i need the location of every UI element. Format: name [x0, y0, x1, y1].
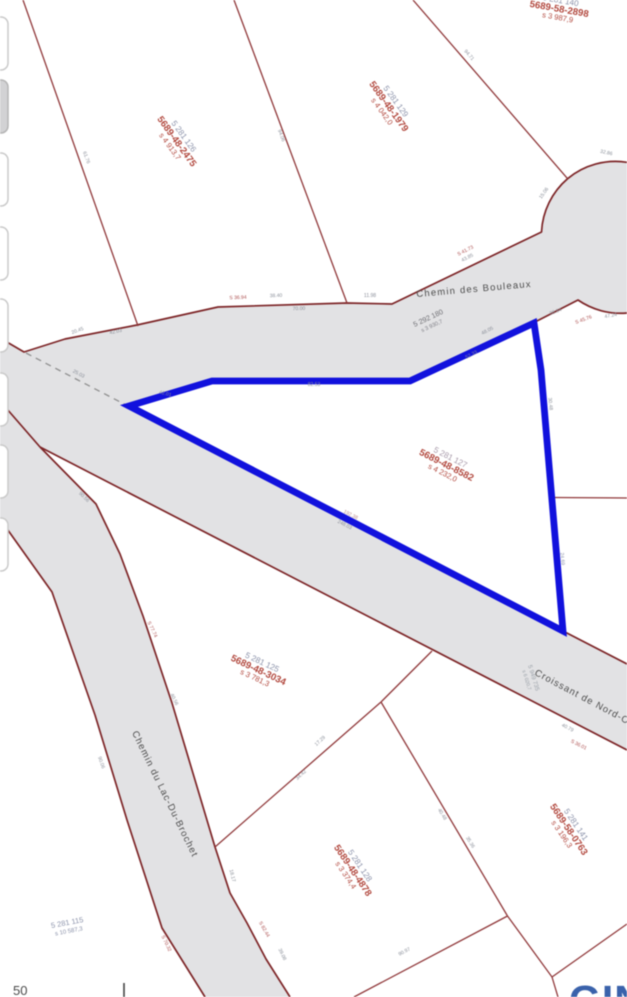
svg-text:50: 50 [13, 983, 27, 997]
svg-text:S 36.94: S 36.94 [229, 295, 247, 302]
svg-text:70.00: 70.00 [293, 306, 306, 312]
svg-text:GIN: GIN [569, 977, 627, 997]
svg-text:82.53: 82.53 [308, 382, 321, 388]
svg-text:38.40: 38.40 [270, 293, 283, 299]
svg-text:11.98: 11.98 [364, 293, 376, 299]
